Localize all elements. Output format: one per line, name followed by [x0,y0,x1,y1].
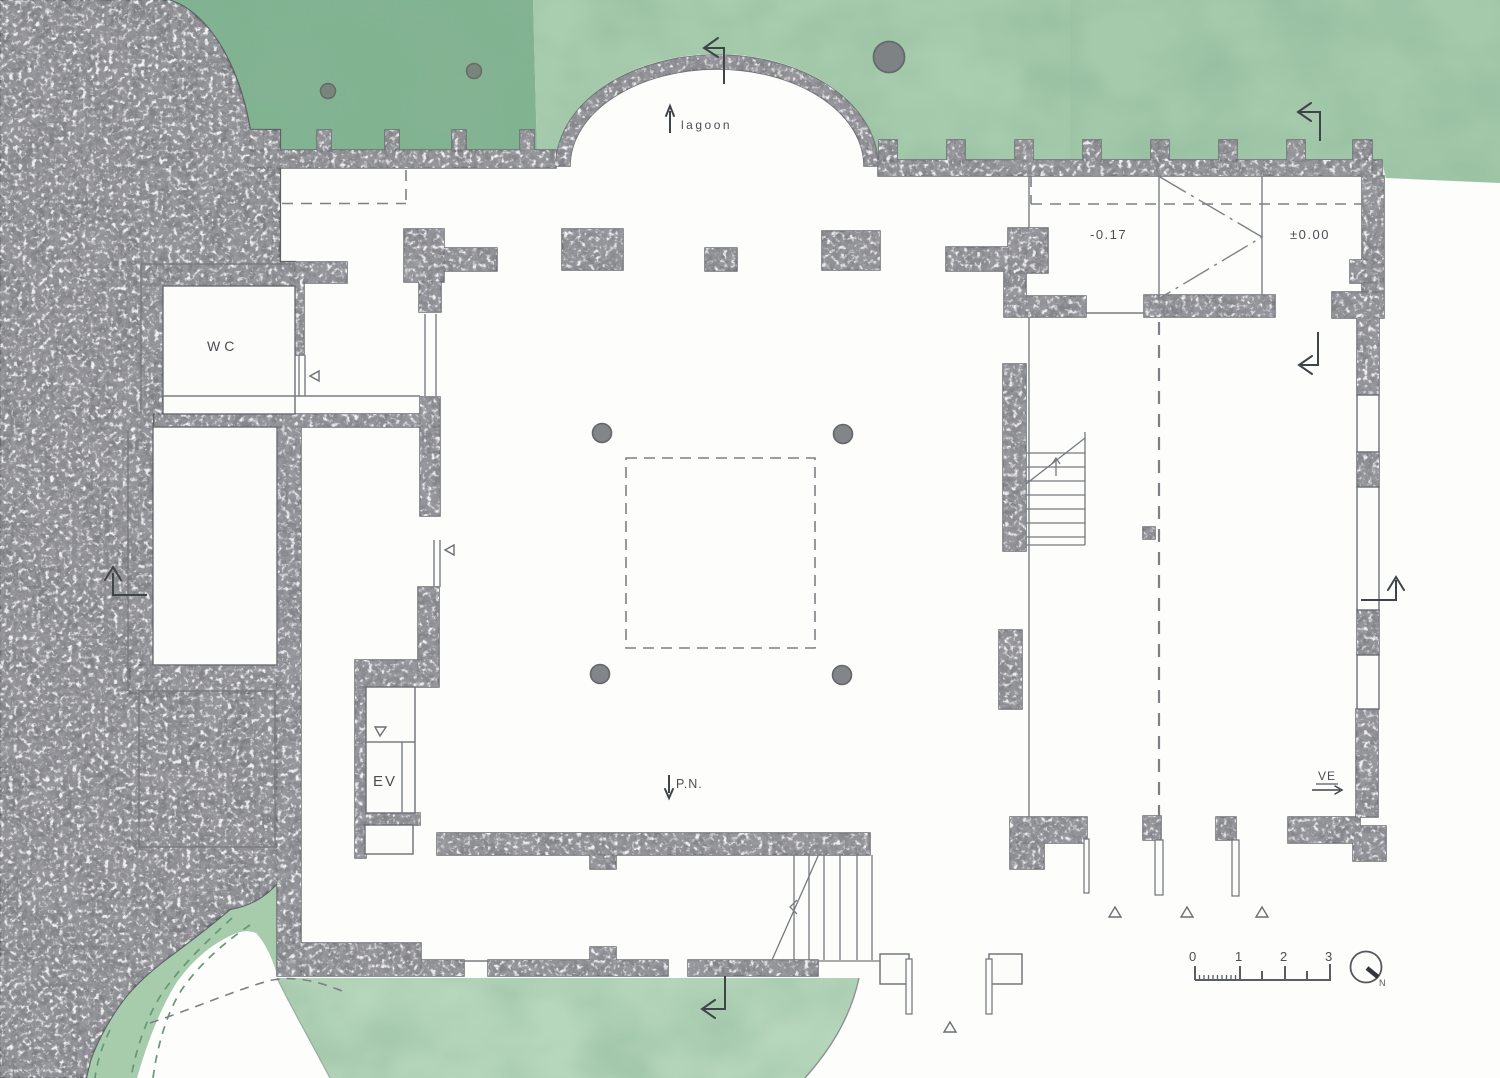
svg-text:P.N.: P.N. [676,777,703,791]
svg-text:2: 2 [1280,949,1287,964]
svg-text:3: 3 [1325,949,1332,964]
svg-text:N: N [1379,978,1386,988]
svg-text:lagoon: lagoon [681,118,732,132]
svg-text:-0.17: -0.17 [1090,227,1127,242]
svg-text:±0.00: ±0.00 [1290,227,1330,242]
svg-text:1: 1 [1235,949,1242,964]
svg-text:VE: VE [1318,769,1336,783]
svg-text:EV: EV [373,773,397,790]
svg-text:WC: WC [207,338,238,354]
svg-text:0: 0 [1189,949,1196,964]
